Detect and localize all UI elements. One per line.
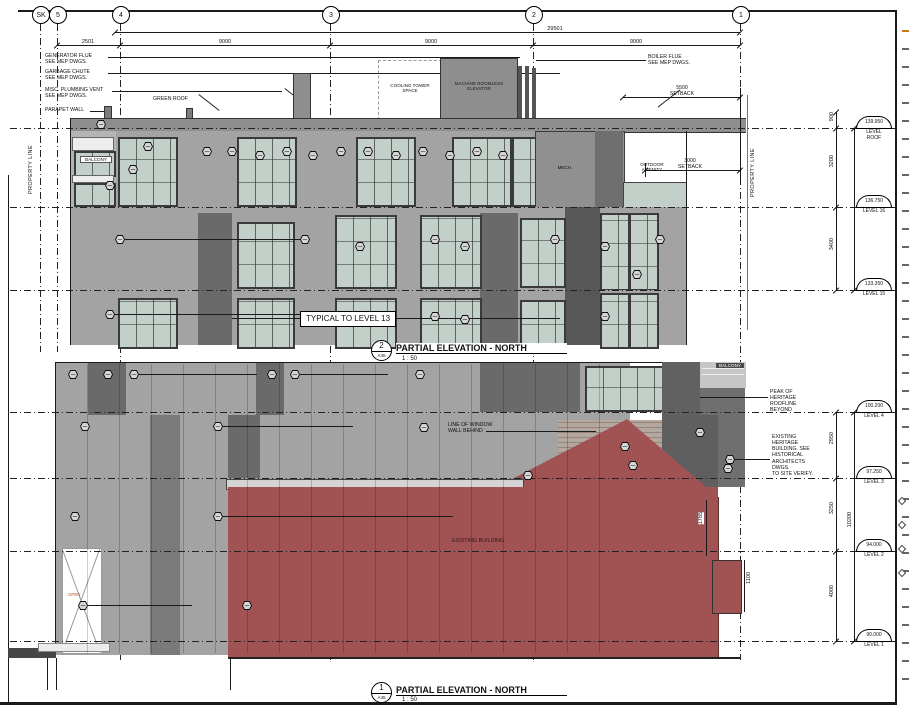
- cooling-tower-space: COOLING TOWER SPACE: [378, 60, 442, 120]
- level-line: [10, 128, 895, 129]
- dim-text-overall: 29501: [546, 26, 563, 32]
- dim-text: 3250: [829, 502, 835, 514]
- keynote-hex-icon: [632, 270, 642, 279]
- level-line: [10, 478, 895, 479]
- detail-number: 2: [372, 341, 391, 352]
- leader-line: [536, 60, 646, 61]
- sheet-edge-mark: [902, 246, 909, 248]
- keynote-hex-icon: [105, 181, 115, 190]
- keynote-hex-icon: [445, 151, 455, 160]
- dim-text: 4000: [829, 585, 835, 597]
- keynote-hex-icon: [267, 370, 277, 379]
- grid-bubble-2: 2: [525, 6, 543, 24]
- label-cooling-tower: COOLING TOWER SPACE: [383, 83, 437, 94]
- level-elevation: 94.000: [856, 539, 892, 552]
- keynote-hex-icon: [255, 151, 265, 160]
- level-name: LEVEL 2: [856, 553, 892, 559]
- label-open: OPEN: [68, 592, 80, 597]
- dim-text: 1100: [746, 572, 752, 584]
- grid-bubble-label: 5: [56, 12, 60, 19]
- dim-text: 9000: [424, 39, 438, 45]
- keynote-hex-icon: [419, 423, 429, 432]
- dim-text: 1785: [698, 512, 704, 524]
- annotation-parapet-wall: PARAPET WALL: [45, 107, 105, 113]
- level-elevation: 90.000: [856, 629, 892, 642]
- sheet-border-left: [8, 175, 9, 702]
- keynote-hex-icon: [80, 422, 90, 431]
- level-marker-2: 94.000LEVEL 2: [856, 539, 892, 559]
- detail-number: 1: [372, 683, 391, 694]
- grid-bubble-5: 5: [49, 6, 67, 24]
- note-typical-to-level-13: TYPICAL TO LEVEL 13: [300, 311, 396, 327]
- keynote-hex-icon: [143, 142, 153, 151]
- grid-bubble-label: 1: [739, 12, 743, 19]
- level-marker-roof: 139.950LEVEL ROOF: [856, 116, 892, 142]
- sheet-edge-mark: [902, 66, 909, 68]
- keynote-hex-icon: [336, 147, 346, 156]
- leader-line: [125, 239, 310, 240]
- sheet-number: A45: [372, 694, 391, 701]
- title-bubble: 2A45: [371, 340, 392, 361]
- keynote-hex-icon: [655, 235, 665, 244]
- level-marker-4: 100.200LEVEL 4: [856, 400, 892, 420]
- facade-dark-strip: [198, 290, 232, 345]
- balcony-rail: [702, 374, 744, 375]
- leader-line: [394, 318, 560, 319]
- sheet-edge-mark: [902, 192, 909, 194]
- sheet-edge-diamond: [898, 521, 906, 529]
- keynote-hex-icon: [213, 422, 223, 431]
- sill: [38, 643, 110, 652]
- sheet-edge-mark: [902, 138, 909, 140]
- panel-joint: [567, 364, 568, 653]
- drawing-sheet: SK 5 4 3 2 1 29501 2501 9000 9000 9000 G…: [0, 0, 914, 712]
- leader-line: [115, 314, 305, 315]
- sheet-border-right: [895, 10, 897, 702]
- keynote-hex-icon: [550, 235, 560, 244]
- sheet-edge-mark: [902, 210, 909, 212]
- annotation-garbage-chute: GARBAGE CHUTE SEE MEP DWGS.: [45, 69, 109, 81]
- sheet-edge-mark: [902, 30, 909, 32]
- rooftop-stack: [293, 73, 311, 120]
- sheet-edge-mark: [902, 408, 909, 410]
- level-name: LEVEL 15: [856, 292, 892, 298]
- dim-text: 2501: [81, 39, 95, 45]
- window: [600, 293, 630, 349]
- panel-joint: [311, 364, 312, 653]
- heritage-wing: [712, 560, 742, 614]
- sheet-edge-mark: [902, 282, 909, 284]
- window: [335, 215, 397, 289]
- sheet-edge-mark: [902, 120, 909, 122]
- level-name: LEVEL ROOF: [856, 130, 892, 142]
- keynote-hex-icon: [725, 455, 735, 464]
- sheet-edge-mark: [902, 588, 909, 590]
- keynote-hex-icon: [391, 151, 401, 160]
- window: [74, 151, 116, 177]
- property-line: [747, 95, 748, 330]
- leader-line: [734, 459, 770, 460]
- level-line: [10, 412, 895, 413]
- keynote-hex-icon: [68, 370, 78, 379]
- facade-dark-strip: [480, 213, 518, 290]
- panel-joint: [439, 364, 440, 653]
- panel-joint: [375, 364, 376, 653]
- keynote-hex-icon: [96, 120, 106, 129]
- sheet-edge-mark: [902, 606, 909, 608]
- level-elevation: 133.350: [856, 278, 892, 291]
- keynote-hex-icon: [128, 165, 138, 174]
- level-marker-16: 136.750LEVEL 16: [856, 195, 892, 215]
- facade-dark-strip: [662, 362, 702, 415]
- keynote-hex-icon: [415, 370, 425, 379]
- facade-dark-strip: [565, 207, 600, 290]
- sheet-edge-mark: [902, 318, 909, 320]
- sheet-edge-mark: [902, 444, 909, 446]
- keynote-hex-icon: [308, 151, 318, 160]
- keynote-hex-icon: [600, 312, 610, 321]
- facade-dark-strip: [228, 415, 260, 478]
- annotation-window-wall: LINE OF WINDOW WALL BEHIND: [448, 422, 510, 434]
- sheet-edge-mark: [902, 102, 909, 104]
- label-machine-room: MACHINE ROOMLESS ELEVATOR: [445, 81, 513, 92]
- window: [629, 213, 659, 291]
- annotation-peak-roofline: PEAK OF HERITAGE ROOFLINE BEYOND: [770, 389, 812, 414]
- grid-bubble-1: 1: [732, 6, 750, 24]
- panel-joint: [183, 364, 184, 653]
- keynote-hex-icon: [695, 428, 705, 437]
- window: [237, 222, 295, 289]
- extension-line: [230, 658, 231, 690]
- annotation-boiler-flue: BOILER FLUE SEE MEP DWGS.: [648, 54, 702, 66]
- panel-joint: [599, 364, 600, 653]
- panel-joint: [151, 364, 152, 653]
- level-line: [10, 290, 895, 291]
- dim-text: 5500: [676, 85, 688, 91]
- keynote-hex-icon: [242, 601, 252, 610]
- grid-line: [40, 24, 41, 352]
- dim-text: 3400: [829, 238, 835, 250]
- sheet-edge-mark: [902, 516, 909, 518]
- dim-line: [115, 32, 740, 33]
- keynote-hex-icon: [115, 235, 125, 244]
- keynote-hex-icon: [472, 147, 482, 156]
- level-elevation: 97.250: [856, 466, 892, 479]
- keynote-hex-icon: [600, 242, 610, 251]
- title-bubble: 1A45: [371, 682, 392, 703]
- panel-joint: [215, 364, 216, 653]
- keynote-hex-icon: [213, 512, 223, 521]
- sheet-edge-mark: [902, 174, 909, 176]
- keynote-hex-icon: [620, 442, 630, 451]
- level-marker-1: 90.000LEVEL 1: [856, 629, 892, 649]
- level-elevation: 139.950: [856, 116, 892, 129]
- dim-text: 3200: [829, 155, 835, 167]
- heritage-building-wall: [228, 487, 718, 657]
- facade-dark-strip: [198, 213, 232, 290]
- keynote-hex-icon: [105, 310, 115, 319]
- keynote-hex-icon: [460, 315, 470, 324]
- extension-line: [47, 658, 48, 690]
- sheet-edge-mark: [902, 480, 909, 482]
- sheet-border-top: [18, 10, 897, 12]
- view-title: PARTIAL ELEVATION - NORTH: [396, 685, 567, 696]
- keynote-hex-icon: [723, 464, 733, 473]
- keynote-hex-icon: [498, 151, 508, 160]
- leader-line: [223, 426, 353, 427]
- sheet-edge-mark: [902, 660, 909, 662]
- level-line: [10, 641, 895, 642]
- window: [520, 218, 566, 288]
- panel-joint: [119, 364, 120, 653]
- level-name: LEVEL 1: [856, 643, 892, 649]
- level-name: LEVEL 4: [856, 414, 892, 420]
- grid-bubble-sk: SK: [32, 6, 50, 24]
- sheet-edge-mark: [902, 300, 909, 302]
- window: [452, 137, 512, 207]
- mech-box-dark: [595, 131, 623, 207]
- building-edge: [55, 362, 56, 655]
- extension-line: [56, 658, 57, 690]
- dim-text: 3000: [684, 158, 696, 164]
- facade-dark-strip: [565, 290, 600, 345]
- sheet-edge-mark: [902, 336, 909, 338]
- dim-text: 9000: [218, 39, 232, 45]
- sheet-edge-mark: [902, 264, 909, 266]
- sheet-edge-mark: [902, 624, 909, 626]
- panel-joint: [503, 364, 504, 653]
- keynote-hex-icon: [430, 235, 440, 244]
- flue: [532, 68, 536, 118]
- view-scale: 1 : 50: [402, 356, 417, 362]
- window: [520, 300, 566, 349]
- window: [420, 298, 482, 349]
- label-balcony: BALCONY: [716, 363, 744, 368]
- annotation-plumbing-vent: MISC. PLUMBING VENT SEE MEP DWGS.: [45, 87, 115, 99]
- flue: [518, 66, 522, 118]
- sheet-edge-mark: [902, 426, 909, 428]
- leader-line: [88, 605, 192, 606]
- panel-joint: [279, 364, 280, 653]
- window: [420, 215, 482, 289]
- panel-joint: [471, 364, 472, 653]
- keynote-hex-icon: [290, 370, 300, 379]
- level-elevation: 100.200: [856, 400, 892, 413]
- annotation-generator-flue: GENERATOR FLUE SEE MEP DWGS.: [45, 53, 109, 65]
- keynote-hex-icon: [78, 601, 88, 610]
- panel-joint: [343, 364, 344, 653]
- dim-line: [836, 112, 837, 290]
- level-name: LEVEL 3: [856, 480, 892, 486]
- dim-text: 2950: [829, 432, 835, 444]
- sheet-edge-mark: [902, 678, 909, 680]
- machine-room: MACHINE ROOMLESS ELEVATOR: [440, 58, 518, 120]
- dim-line: [57, 45, 740, 46]
- facade-dark-strip: [480, 362, 580, 412]
- level-line: [10, 207, 895, 208]
- view-title: PARTIAL ELEVATION - NORTH: [396, 343, 567, 354]
- grid-bubble-label: SK: [36, 12, 45, 19]
- building-edge: [70, 118, 71, 345]
- label-property-line-left: PROPERTY LINE: [28, 145, 34, 194]
- level-line: [10, 551, 895, 552]
- keynote-hex-icon: [363, 147, 373, 156]
- sheet-edge-mark: [902, 642, 909, 644]
- grid-bubble-label: 4: [119, 12, 123, 19]
- sheet-edge-mark: [902, 156, 909, 158]
- dim-line: [854, 412, 855, 641]
- sheet-edge-mark: [902, 390, 909, 392]
- view-scale: 1 : 50: [402, 697, 417, 703]
- leader-line: [198, 94, 219, 111]
- annotation-heritage-building: EXISTING HERITAGE BUILDING. SEE HISTORIC…: [772, 434, 820, 477]
- window: [600, 213, 630, 291]
- panel-joint: [535, 364, 536, 653]
- facade-dark-strip: [150, 415, 180, 655]
- keynote-hex-icon: [460, 242, 470, 251]
- sheet-border-bottom: [0, 702, 897, 705]
- keynote-hex-icon: [523, 471, 533, 480]
- keynote-hex-icon: [282, 147, 292, 156]
- sheet-edge-mark: [902, 372, 909, 374]
- dim-line: [706, 500, 707, 556]
- grid-bubble-label: 3: [329, 12, 333, 19]
- leader-line: [232, 318, 302, 319]
- sheet-edge-mark: [902, 48, 909, 50]
- panel-joint: [407, 364, 408, 653]
- dim-text: 9000: [629, 39, 643, 45]
- label-property-line-right: PROPERTY LINE: [750, 148, 756, 197]
- dim-setback-upper: 5500SETBACK: [660, 85, 704, 97]
- level-name: LEVEL 16: [856, 209, 892, 215]
- dim-text: SETBACK: [670, 91, 694, 97]
- leader-line: [700, 397, 768, 398]
- sheet-edge-mark: [902, 84, 909, 86]
- amenity-guard: [623, 182, 687, 209]
- keynote-hex-icon: [355, 242, 365, 251]
- ground-line: [228, 657, 740, 659]
- keynote-hex-icon: [129, 370, 139, 379]
- keynote-hex-icon: [628, 461, 638, 470]
- keynote-hex-icon: [418, 147, 428, 156]
- dim-setback-lower: 3000SETBACK: [668, 158, 712, 170]
- keynote-hex-icon: [202, 147, 212, 156]
- keynote-hex-icon: [430, 312, 440, 321]
- window: [585, 366, 667, 412]
- dim-line: [854, 128, 855, 290]
- window: [237, 298, 295, 349]
- keynote-hex-icon: [227, 147, 237, 156]
- leader-line: [112, 91, 282, 92]
- leader-line: [139, 374, 257, 375]
- sheet-edge-mark: [902, 462, 909, 464]
- keynote-hex-icon: [300, 235, 310, 244]
- dim-line: [744, 560, 745, 612]
- grid-bubble-label: 2: [532, 12, 536, 19]
- keynote-hex-icon: [70, 512, 80, 521]
- building-edge: [55, 362, 745, 363]
- sheet-edge-mark: [902, 534, 909, 536]
- balcony-slab: [72, 137, 114, 151]
- label-green-roof: GREEN ROOF: [153, 96, 193, 102]
- sheet-edge-mark: [902, 228, 909, 230]
- level-marker-15: 133.350LEVEL 15: [856, 278, 892, 298]
- leader-line: [223, 516, 453, 517]
- dim-text-overall: 10200: [847, 512, 853, 527]
- dim-text: SETBACK: [678, 164, 702, 170]
- label-mech: MECH.: [535, 165, 595, 170]
- level-elevation: 136.750: [856, 195, 892, 208]
- sheet-edge-mark: [902, 354, 909, 356]
- window: [629, 293, 659, 349]
- label-existing-building: EXISTING BUILDING: [452, 538, 504, 544]
- grid-bubble-3: 3: [322, 6, 340, 24]
- sheet-number: A45: [372, 352, 391, 359]
- window: [118, 298, 178, 349]
- keynote-hex-icon: [103, 370, 113, 379]
- label-balcony: BALCONY: [80, 156, 112, 163]
- flue: [525, 66, 529, 118]
- dim-line: [836, 412, 837, 641]
- sheet-edge-mark: [902, 552, 909, 554]
- level-marker-3: 97.250LEVEL 3: [856, 466, 892, 486]
- grid-bubble-4: 4: [112, 6, 130, 24]
